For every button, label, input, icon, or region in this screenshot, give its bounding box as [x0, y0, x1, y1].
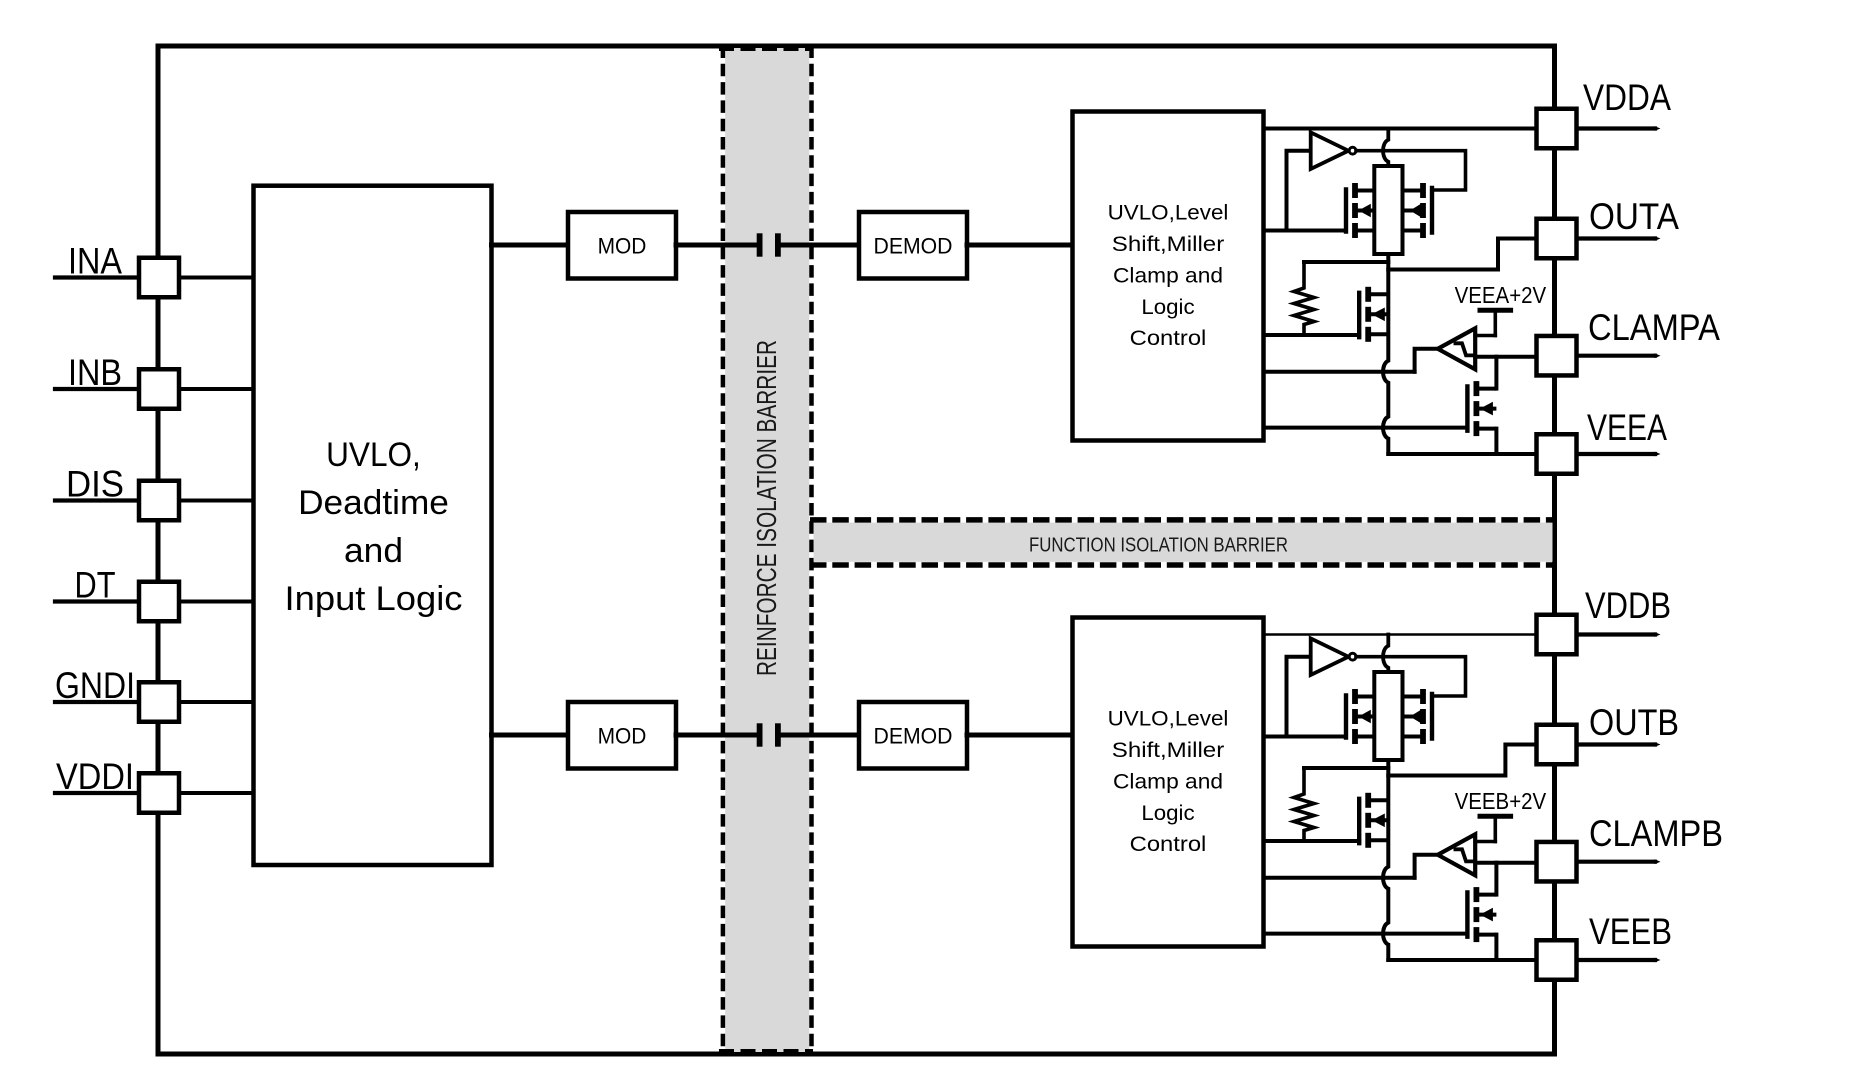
svg-text:INA: INA — [68, 241, 122, 282]
svg-text:Control: Control — [1130, 832, 1207, 856]
svg-text:Shift,Miller: Shift,Miller — [1112, 232, 1225, 256]
svg-text:Control: Control — [1130, 326, 1207, 350]
svg-text:REINFORCE ISOLATION BARRIER: REINFORCE ISOLATION BARRIER — [751, 340, 782, 676]
svg-text:CLAMPA: CLAMPA — [1588, 307, 1720, 348]
svg-text:VEEA+2V: VEEA+2V — [1455, 282, 1547, 308]
svg-text:UVLO,Level: UVLO,Level — [1108, 201, 1229, 225]
svg-text:Logic: Logic — [1141, 295, 1195, 319]
svg-text:VEEA: VEEA — [1587, 407, 1667, 448]
svg-text:OUTB: OUTB — [1589, 702, 1679, 743]
svg-text:CLAMPB: CLAMPB — [1589, 813, 1723, 854]
svg-text:Shift,Miller: Shift,Miller — [1112, 738, 1225, 762]
svg-text:MOD: MOD — [598, 233, 647, 258]
svg-text:DIS: DIS — [66, 464, 124, 505]
svg-text:DEMOD: DEMOD — [874, 233, 953, 258]
svg-text:VDDB: VDDB — [1585, 585, 1671, 626]
svg-text:Input Logic: Input Logic — [285, 580, 463, 618]
svg-text:MOD: MOD — [598, 723, 647, 748]
svg-text:VDDA: VDDA — [1583, 77, 1671, 118]
svg-text:UVLO,Level: UVLO,Level — [1108, 707, 1229, 731]
svg-text:VEEB+2V: VEEB+2V — [1455, 788, 1547, 814]
svg-text:DT: DT — [75, 565, 116, 606]
svg-text:OUTA: OUTA — [1589, 196, 1679, 237]
svg-text:VEEB: VEEB — [1589, 911, 1672, 952]
svg-text:UVLO,: UVLO, — [326, 436, 421, 474]
svg-text:DEMOD: DEMOD — [874, 723, 953, 748]
svg-text:GNDI: GNDI — [55, 665, 135, 706]
svg-text:VDDI: VDDI — [56, 756, 134, 797]
svg-text:Clamp and: Clamp and — [1113, 263, 1223, 287]
svg-text:Clamp and: Clamp and — [1113, 769, 1223, 793]
svg-text:Deadtime: Deadtime — [298, 484, 449, 522]
svg-text:and: and — [344, 532, 403, 570]
svg-text:Logic: Logic — [1141, 801, 1195, 825]
svg-text:INB: INB — [68, 352, 122, 393]
svg-text:FUNCTION ISOLATION BARRIER: FUNCTION ISOLATION BARRIER — [1029, 534, 1288, 557]
